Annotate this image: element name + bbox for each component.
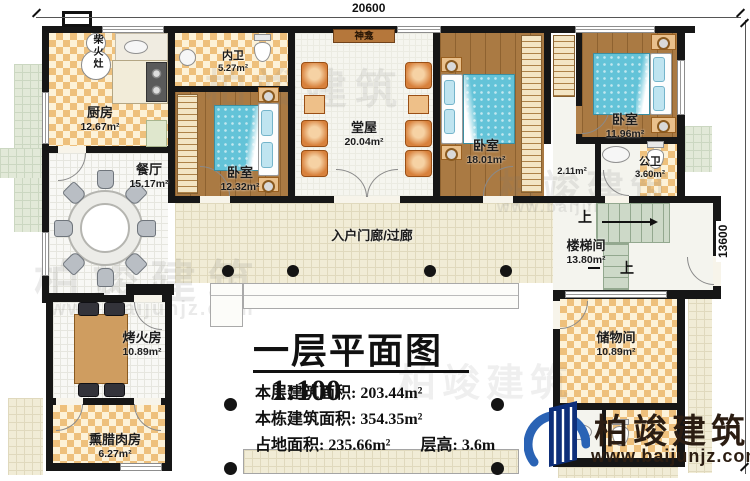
dimension-right-label: 13600 bbox=[716, 221, 730, 262]
doorway bbox=[200, 196, 230, 203]
column bbox=[224, 398, 237, 411]
area-line-2: 本栋建筑面积: 354.35m² bbox=[255, 405, 422, 429]
armchair bbox=[405, 150, 432, 177]
nightstand bbox=[651, 34, 676, 50]
room-label-bedroom-left: 卧室12.32m² bbox=[208, 165, 272, 193]
armchair bbox=[301, 62, 328, 89]
room-label-dining: 餐厅15.17m² bbox=[118, 162, 180, 190]
armchair bbox=[405, 120, 432, 147]
column bbox=[287, 265, 299, 277]
pillow bbox=[653, 57, 665, 82]
room-label-bedroom-mid: 卧室18.01m² bbox=[455, 138, 517, 166]
wall bbox=[126, 284, 174, 295]
chimney bbox=[62, 11, 92, 27]
wall bbox=[46, 295, 53, 471]
column bbox=[491, 462, 504, 475]
pillow bbox=[261, 110, 273, 136]
window bbox=[42, 232, 49, 276]
wardrobe bbox=[177, 94, 198, 194]
armchair bbox=[405, 62, 432, 89]
stair-up-label: 上 bbox=[578, 207, 592, 227]
room-label-public-bath: 公卫3.60m² bbox=[624, 156, 676, 181]
column bbox=[222, 265, 234, 277]
toilet-tank bbox=[254, 34, 271, 41]
stair-direction-line bbox=[602, 221, 650, 223]
nightstand bbox=[441, 57, 462, 72]
room-label-bacon-room: 熏腊肉房6.27m² bbox=[82, 432, 148, 460]
dining-chair bbox=[137, 220, 156, 237]
stove-icon bbox=[146, 62, 167, 102]
doorway bbox=[483, 196, 513, 203]
terrace-left-bottom bbox=[8, 398, 43, 475]
doorway bbox=[58, 146, 86, 153]
window bbox=[677, 60, 685, 115]
wall bbox=[42, 26, 110, 33]
vestibule-floor bbox=[553, 97, 576, 144]
shrine-table: 神龛 bbox=[333, 29, 395, 43]
column bbox=[224, 462, 237, 475]
column bbox=[424, 265, 436, 277]
side-table bbox=[408, 95, 429, 114]
patio-left-small bbox=[0, 148, 43, 178]
room-label-fire-room: 烤火房10.89m² bbox=[112, 330, 172, 358]
stair-arrow bbox=[650, 218, 658, 226]
room-label-bedroom-right: 卧室11.96m² bbox=[594, 112, 656, 140]
doorway bbox=[605, 196, 629, 203]
doorway bbox=[334, 196, 400, 203]
nightstand bbox=[258, 87, 279, 102]
room-label-inner-bath: 内卫5.27m² bbox=[207, 50, 259, 75]
stair-up-label: 上 bbox=[620, 258, 634, 278]
doorway bbox=[553, 301, 560, 329]
dining-chair bbox=[54, 220, 73, 237]
wall bbox=[288, 26, 295, 203]
doorway bbox=[134, 295, 162, 302]
floor-plan: 柏竣建筑 柏竣建筑 www.baijunjz.com 柏竣建筑 www.baij… bbox=[0, 0, 750, 481]
brand-logo-icon bbox=[524, 394, 590, 478]
window bbox=[42, 92, 49, 144]
wall bbox=[433, 26, 440, 203]
dimension-line-right bbox=[745, 20, 746, 474]
wall bbox=[165, 295, 172, 471]
dining-table-inner bbox=[80, 203, 130, 253]
bed bbox=[593, 53, 650, 115]
room-label-storage: 储物间10.89m² bbox=[584, 330, 648, 358]
bed bbox=[463, 74, 515, 144]
dining-chair bbox=[97, 170, 114, 189]
column bbox=[500, 265, 512, 277]
room-label-hall: 堂屋20.04m² bbox=[329, 120, 399, 148]
room-label-vestibule: 2.11m² bbox=[548, 166, 596, 177]
room-label-corridor: 入户门廊/过廊 bbox=[322, 228, 422, 244]
title-underline bbox=[253, 370, 469, 373]
room-label-kitchen: 厨房12.67m² bbox=[70, 105, 130, 133]
dining-chair bbox=[97, 268, 114, 287]
toilet-tank bbox=[647, 141, 664, 148]
bedroom-right-closet bbox=[553, 35, 575, 97]
pillow bbox=[444, 109, 455, 134]
area-line-3: 占地面积: 235.66m² 层高: 3.6m bbox=[255, 431, 495, 455]
chair bbox=[78, 302, 99, 316]
window bbox=[102, 26, 164, 33]
area-line-1: 本层建筑面积: 203.44m² bbox=[255, 379, 422, 403]
stair-flight-upper bbox=[596, 203, 670, 243]
pillow bbox=[444, 80, 455, 105]
dimension-top-label: 20600 bbox=[348, 1, 389, 15]
plan-title: 一层平面图 bbox=[253, 331, 443, 371]
patio-right bbox=[685, 126, 712, 172]
wall bbox=[553, 196, 721, 203]
side-table bbox=[304, 95, 325, 114]
window bbox=[120, 463, 162, 471]
bed bbox=[214, 105, 260, 171]
room-label-stairwell: 楼梯间13.80m² bbox=[554, 238, 618, 266]
brand-logo-url: www.baijunjz.com bbox=[591, 446, 750, 467]
window bbox=[575, 26, 655, 33]
kitchen-sink bbox=[124, 40, 148, 54]
wood-stove-label: 柴火灶 bbox=[89, 34, 104, 84]
window bbox=[397, 26, 441, 33]
dimension-line-top bbox=[36, 17, 741, 18]
chair bbox=[104, 383, 125, 397]
wardrobe bbox=[521, 35, 542, 193]
armchair bbox=[301, 150, 328, 177]
porch-steps-top bbox=[243, 283, 519, 309]
pillow bbox=[653, 86, 665, 111]
inner-bath-sink bbox=[179, 49, 196, 66]
wall bbox=[544, 26, 551, 144]
chair bbox=[104, 302, 125, 316]
kitchen-cabinet bbox=[146, 120, 167, 147]
armchair bbox=[301, 120, 328, 147]
stair-direction-line bbox=[588, 267, 600, 269]
chair bbox=[78, 383, 99, 397]
window bbox=[565, 291, 667, 298]
porch-steps-left bbox=[210, 283, 243, 327]
